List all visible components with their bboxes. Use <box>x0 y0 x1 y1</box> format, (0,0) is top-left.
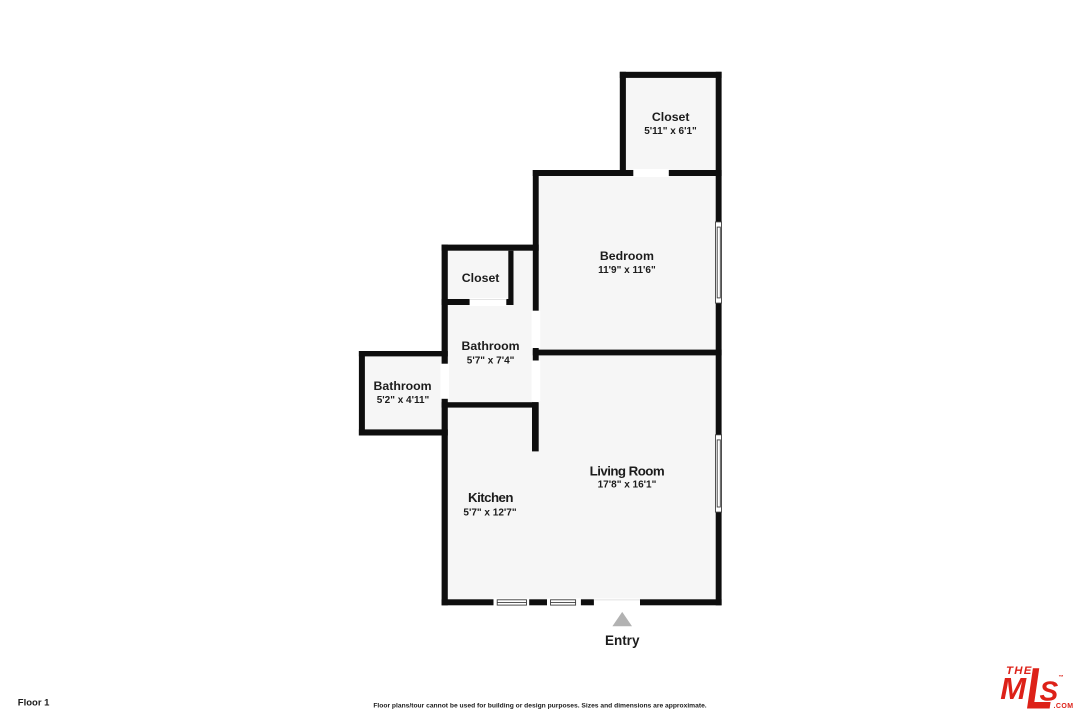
svg-text:Bathroom: Bathroom <box>462 339 520 353</box>
svg-text:S: S <box>1040 676 1059 707</box>
svg-text:Kitchen: Kitchen <box>468 490 513 505</box>
svg-text:17'8" x 16'1": 17'8" x 16'1" <box>598 479 657 490</box>
svg-text:Floor plans/tour cannot be use: Floor plans/tour cannot be used for buil… <box>373 703 706 710</box>
svg-text:5'7" x 7'4": 5'7" x 7'4" <box>467 355 515 366</box>
svg-text:5'11" x 6'1": 5'11" x 6'1" <box>644 126 697 137</box>
svg-text:Bathroom: Bathroom <box>374 379 432 393</box>
svg-text:Entry: Entry <box>605 633 640 648</box>
svg-text:5'7" x 12'7": 5'7" x 12'7" <box>463 508 516 519</box>
svg-text:Floor 1: Floor 1 <box>18 698 50 709</box>
svg-text:Living Room: Living Room <box>590 464 664 479</box>
svg-text:Closet: Closet <box>462 271 500 285</box>
svg-text:M: M <box>1000 671 1027 706</box>
svg-text:™: ™ <box>1059 675 1064 681</box>
svg-text:Bedroom: Bedroom <box>600 249 654 263</box>
svg-text:Closet: Closet <box>652 110 690 124</box>
svg-text:5'2" x 4'11": 5'2" x 4'11" <box>377 395 430 406</box>
svg-text:11'9" x 11'6": 11'9" x 11'6" <box>598 265 656 276</box>
svg-text:.COM: .COM <box>1054 703 1074 710</box>
